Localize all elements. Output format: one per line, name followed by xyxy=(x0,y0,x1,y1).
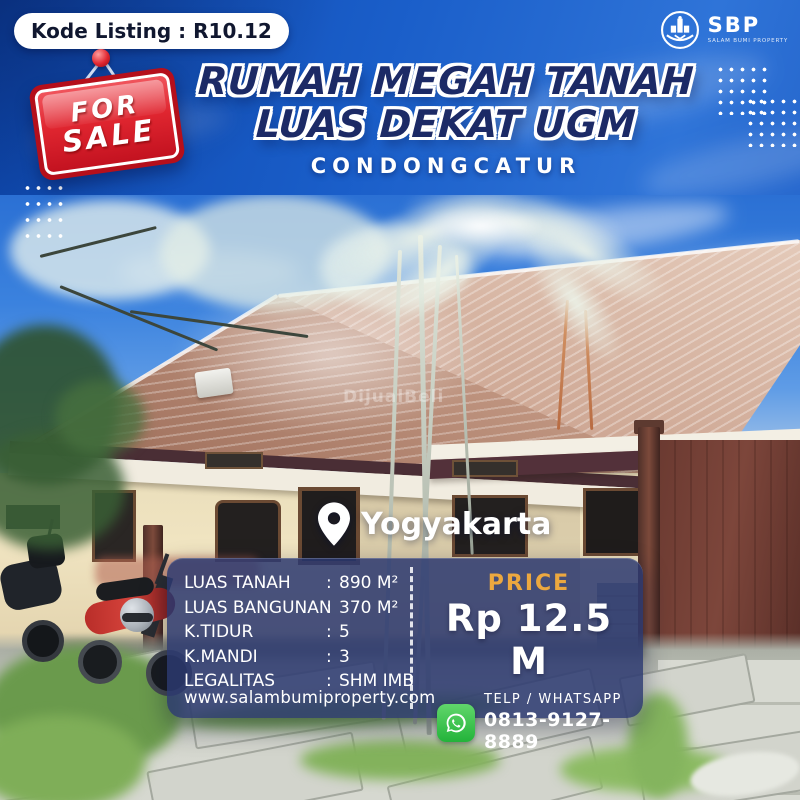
for-sale-sign: FOR SALE xyxy=(26,46,196,186)
window xyxy=(215,500,281,562)
spec-row: K.TIDUR:5 xyxy=(184,620,409,645)
spec-label: K.TIDUR xyxy=(184,620,326,645)
contact-row: TELP / WHATSAPP 0813-9127-8889 xyxy=(437,692,635,753)
bike-wheel xyxy=(78,640,122,684)
listing-code-badge: Kode Listing : R10.12 xyxy=(14,13,289,49)
spec-row: LUAS TANAH:890 M² xyxy=(184,571,409,596)
contact-label: TELP / WHATSAPP xyxy=(484,692,635,707)
vent-window xyxy=(452,460,518,477)
price-value: Rp 12.5 M xyxy=(423,597,635,683)
spec-colon: : xyxy=(326,596,339,621)
spec-row: K.MANDI:3 xyxy=(184,645,409,670)
pin-ball-icon xyxy=(92,49,110,67)
price-label: PRICE xyxy=(423,571,635,596)
contact-phone: 0813-9127-8889 xyxy=(484,709,635,753)
logo-text: SBP SALAM BUMI PROPERTY xyxy=(708,15,788,45)
headline: RUMAH MEGAH TANAH LUAS DEKAT UGM CONDONG… xyxy=(158,60,734,178)
garage-door xyxy=(655,440,800,655)
subtitle-location: CONDONGCATUR xyxy=(158,154,734,178)
palm-frond xyxy=(415,205,545,247)
logo-tagline: SALAM BUMI PROPERTY xyxy=(708,39,788,45)
spec-value: 890 M² xyxy=(339,571,409,596)
spec-label: K.MANDI xyxy=(184,645,326,670)
location-name: Yogyakarta xyxy=(361,507,551,542)
spec-colon: : xyxy=(326,620,339,645)
logo-emblem-icon xyxy=(659,9,701,51)
location-pin-icon xyxy=(318,502,350,546)
helmet-visor xyxy=(122,613,153,622)
dots-pattern xyxy=(22,180,66,240)
spec-value: 5 xyxy=(339,620,409,645)
vent-window xyxy=(205,452,263,469)
spec-colon: : xyxy=(326,645,339,670)
spec-value: 3 xyxy=(339,645,409,670)
spec-label: LUAS TANAH xyxy=(184,571,326,596)
scooter-wheel xyxy=(22,620,64,662)
website-url: www.salambumiproperty.com xyxy=(184,688,436,707)
info-panel: LUAS TANAH:890 M² LUAS BANGUNAN:370 M² K… xyxy=(167,558,643,718)
price-section: PRICE Rp 12.5 M TELP / WHATSAPP 0813-912… xyxy=(423,566,635,753)
roof-vent xyxy=(194,368,233,399)
title-line-2: LUAS DEKAT UGM xyxy=(157,103,735,146)
sale-board-face: FOR SALE xyxy=(34,72,181,176)
spec-colon: : xyxy=(326,571,339,596)
spec-label: LUAS BANGUNAN xyxy=(184,596,326,621)
dashed-divider xyxy=(410,567,413,709)
title-line-1: RUMAH MEGAH TANAH xyxy=(157,60,735,103)
dots-pattern xyxy=(745,96,797,147)
spec-value: 370 M² xyxy=(339,596,409,621)
contact-text: TELP / WHATSAPP 0813-9127-8889 xyxy=(484,692,635,753)
spec-row: LUAS BANGUNAN:370 M² xyxy=(184,596,409,621)
spec-list: LUAS TANAH:890 M² LUAS BANGUNAN:370 M² K… xyxy=(184,571,409,694)
brand-logo: SBP SALAM BUMI PROPERTY xyxy=(659,9,788,51)
location-badge: Yogyakarta xyxy=(318,502,551,546)
property-flyer: DijualBeli Kode Listing : R10.12 FOR SAL… xyxy=(0,0,800,800)
tree-foliage-dark xyxy=(55,380,145,455)
logo-abbr: SBP xyxy=(708,15,788,36)
whatsapp-icon xyxy=(437,704,475,742)
sale-board: FOR SALE xyxy=(28,66,186,181)
watermark-text: DijualBeli xyxy=(343,387,444,407)
window xyxy=(583,488,641,556)
